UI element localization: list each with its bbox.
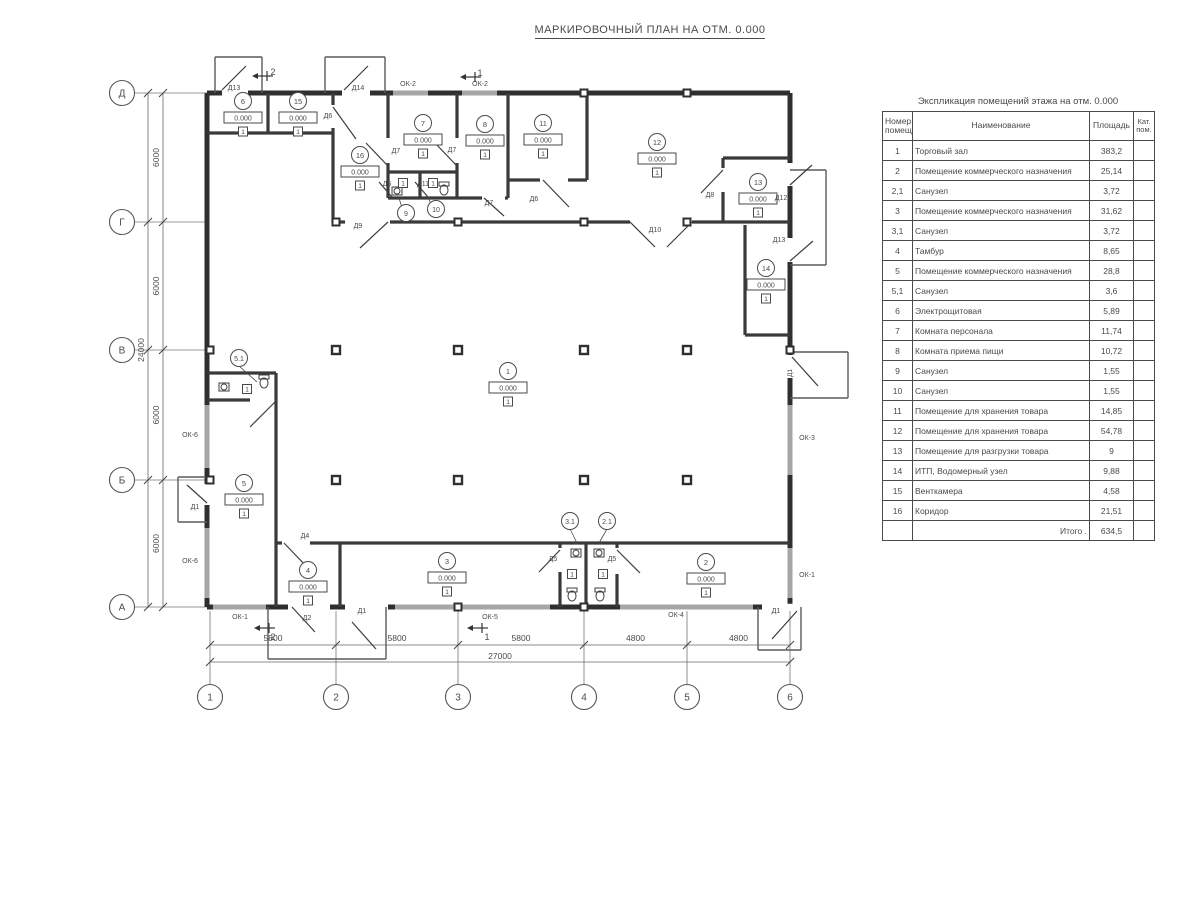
room-number-cell: 14 [883,461,913,481]
room-area-cell: 25,14 [1090,161,1134,181]
grid-col-label: 3 [455,693,461,704]
sink-icon [596,550,602,556]
room-cat-cell [1134,181,1155,201]
door-leaf [360,222,388,248]
floor-type: 1 [506,399,510,406]
floor-type: 1 [296,129,300,136]
room-name-cell: Санузел [913,381,1090,401]
room-name-cell: Санузел [913,361,1090,381]
door-leaf [790,165,812,185]
door-label: Д10 [649,227,662,234]
table-row: 7Комната персонала11,74 [883,321,1155,341]
column [454,476,462,484]
door-label: Д11 [417,181,429,188]
table-row: 12Помещение для хранения товара54,78 [883,421,1155,441]
elevation-value: 0.000 [289,116,307,123]
room-number-cell: 7 [883,321,913,341]
room-cat-cell [1134,461,1155,481]
room-name-cell: Торговый зал [913,141,1090,161]
room-name-cell: Венткамера [913,481,1090,501]
floor-type: 1 [431,181,435,188]
room-cat-cell [1134,141,1155,161]
room-cat-cell [1134,361,1155,381]
column [454,346,462,354]
room-number-cell: 10 [883,381,913,401]
table-row: 9Санузел1,55 [883,361,1155,381]
dim-value-left: 6000 [151,148,161,167]
door-leaf [543,180,569,207]
room-schedule: Экспликация помещений этажа на отм. 0.00… [882,96,1154,541]
floor-type: 1 [570,572,574,579]
room-number: 1 [506,367,510,376]
grid-row-label: А [119,603,126,614]
door-label: Д7 [448,147,457,154]
room-number: 9 [404,211,408,218]
door-label: Д7 [392,148,401,155]
sink-icon [573,550,579,556]
room-number: 10 [432,207,440,214]
total-cat-cell [1134,521,1155,541]
wall-column [684,90,691,97]
room-number: 12 [653,138,661,147]
door-leaf [772,611,797,639]
elevation-value: 0.000 [648,157,666,164]
window-label: ОК-6 [182,558,198,565]
door-label: Д1 [358,608,367,615]
section-number: 2 [270,632,275,642]
wall-column [581,219,588,226]
door-leaf [333,107,356,139]
room-cat-cell [1134,501,1155,521]
room-number: 7 [421,119,425,128]
room-cat-cell [1134,281,1155,301]
room-area-cell: 11,74 [1090,321,1134,341]
wall-column [455,604,462,611]
door-label: Д12 [775,195,788,202]
section-arrow [252,73,258,79]
window-label: ОК-1 [232,614,248,621]
table-row: 4Тамбур8,65 [883,241,1155,261]
grid-col-label: 5 [684,693,690,704]
door-label: Д5 [383,181,392,188]
dim-value-bottom: 5800 [512,633,531,643]
grid-col-label: 4 [581,693,587,704]
room-markers: 10.000120.000130.000140.000150.000160.00… [224,93,785,606]
room-area-cell: 1,55 [1090,361,1134,381]
room-cat-cell [1134,241,1155,261]
table-row: 5Помещение коммерческого назначения28,8 [883,261,1155,281]
total-row: Итого .634,5 [883,521,1155,541]
table-row: 6Электрощитовая5,89 [883,301,1155,321]
total-empty-cell [883,521,913,541]
table-row: 15Венткамера4,58 [883,481,1155,501]
grid-row-label: Г [119,218,125,229]
room-name-cell: Помещение коммерческого назначения [913,201,1090,221]
walls [178,57,848,659]
wall-column [455,219,462,226]
leader-line [599,529,607,543]
elevation-value: 0.000 [234,116,252,123]
room-area-cell: 5,89 [1090,301,1134,321]
dim-value-bottom: 5800 [388,633,407,643]
schedule-table: Номер помещ.НаименованиеПлощадьКат. пом.… [882,111,1155,541]
room-number-cell: 5,1 [883,281,913,301]
column [683,346,691,354]
room-area-cell: 9 [1090,441,1134,461]
room-number-cell: 5 [883,261,913,281]
table-row: 13Помещение для разгрузки товара9 [883,441,1155,461]
drawing-sheet: МАРКИРОВОЧНЫЙ ПЛАН НА ОТМ. 0.000 ДГВБА12… [0,0,1200,900]
dim-value-bottom-total: 27000 [488,651,512,661]
schedule-header: Наименование [913,112,1090,141]
room-name-cell: Помещение для разгрузки товара [913,441,1090,461]
window-label: ОК-4 [668,612,684,619]
table-row: 1Торговый зал383,2 [883,141,1155,161]
sink-icon [221,384,227,390]
total-label-cell: Итого . [913,521,1090,541]
column [332,346,340,354]
elevation-value: 0.000 [757,283,775,290]
room-name-cell: Помещение для хранения товара [913,401,1090,421]
elevation-value: 0.000 [534,138,552,145]
door-label: Д6 [324,113,333,120]
floor-type: 1 [445,589,449,596]
room-number-cell: 3 [883,201,913,221]
wall-column [581,604,588,611]
dim-value-left: 6000 [151,276,161,295]
table-row: 14ИТП, Водомерный узел9,88 [883,461,1155,481]
room-name-cell: Тамбур [913,241,1090,261]
columns [207,90,794,611]
wall-column [207,477,214,484]
dim-value-bottom: 4800 [729,633,748,643]
column [580,476,588,484]
room-cat-cell [1134,321,1155,341]
floor-type: 1 [764,296,768,303]
room-name-cell: Помещение коммерческого назначения [913,161,1090,181]
wall-column [787,347,794,354]
room-name-cell: Помещение коммерческого назначения [913,261,1090,281]
door-leaf [617,550,640,573]
floor-type: 1 [401,181,405,188]
room-number: 5.1 [234,356,244,363]
room-area-cell: 54,78 [1090,421,1134,441]
elevation-value: 0.000 [749,197,767,204]
room-area-cell: 3,72 [1090,181,1134,201]
room-area-cell: 31,62 [1090,201,1134,221]
room-area-cell: 4,58 [1090,481,1134,501]
dim-value-bottom: 4800 [626,633,645,643]
grid-row-label: Д [119,89,126,100]
room-cat-cell [1134,261,1155,281]
room-area-cell: 383,2 [1090,141,1134,161]
table-row: 2Помещение коммерческого назначения25,14 [883,161,1155,181]
section-number: 2 [270,67,275,77]
schedule-header: Кат. пом. [1134,112,1155,141]
elevation-value: 0.000 [476,139,494,146]
wall-column [684,219,691,226]
room-area-cell: 3,72 [1090,221,1134,241]
door-leaf [790,241,813,261]
room-name-cell: Помещение для хранения товара [913,421,1090,441]
dim-value-left: 6000 [151,534,161,553]
room-cat-cell [1134,421,1155,441]
window-label: ОК-1 [799,572,815,579]
room-number: 15 [294,97,302,106]
schedule-header: Площадь [1090,112,1134,141]
window-label: ОК-2 [400,81,416,88]
floor-type: 1 [483,152,487,159]
room-cat-cell [1134,161,1155,181]
room-number: 2 [704,558,708,567]
table-row: 3Помещение коммерческого назначения31,62 [883,201,1155,221]
dim-value-left-total: 24000 [136,338,146,362]
elevation-value: 0.000 [697,577,715,584]
door-label: Д2 [303,615,312,622]
grid-row-label: Б [119,476,126,487]
room-name-cell: ИТП, Водомерный узел [913,461,1090,481]
room-number-cell: 6 [883,301,913,321]
room-number-cell: 11 [883,401,913,421]
door-leaf [792,357,818,386]
table-row: 3,1Санузел3,72 [883,221,1155,241]
door-leaf [250,402,275,427]
room-area-cell: 1,55 [1090,381,1134,401]
door-label: Д14 [352,85,365,92]
window-label: ОК-3 [799,435,815,442]
room-number: 11 [539,119,547,128]
door-leaf [630,222,655,247]
floor-type: 1 [306,598,310,605]
floor-type: 1 [756,210,760,217]
room-cat-cell [1134,401,1155,421]
wall-column [581,90,588,97]
door-label: Д5 [549,556,558,563]
section-arrow [254,625,260,631]
room-name-cell: Санузел [913,221,1090,241]
wall-column [333,219,340,226]
floor-type: 1 [242,511,246,518]
table-row: 2,1Санузел3,72 [883,181,1155,201]
door-label: Д8 [706,192,715,199]
room-number-cell: 4 [883,241,913,261]
grid-col-label: 2 [333,693,339,704]
door-leaf [366,143,388,166]
leader-line [570,529,577,543]
door-label: Д9 [354,223,363,230]
room-number: 13 [754,178,762,187]
room-name-cell: Коридор [913,501,1090,521]
room-number-cell: 8 [883,341,913,361]
elevation-value: 0.000 [299,585,317,592]
room-name-cell: Комната персонала [913,321,1090,341]
room-cat-cell [1134,301,1155,321]
room-cat-cell [1134,441,1155,461]
room-area-cell: 21,51 [1090,501,1134,521]
room-number-cell: 15 [883,481,913,501]
window-label: ОК-2 [472,81,488,88]
section-number: 1 [484,632,489,642]
room-area-cell: 8,65 [1090,241,1134,261]
room-number-cell: 12 [883,421,913,441]
room-cat-cell [1134,381,1155,401]
elevation-value: 0.000 [499,386,517,393]
room-number: 6 [241,97,245,106]
column [580,346,588,354]
room-area-cell: 14,85 [1090,401,1134,421]
room-area-cell: 28,8 [1090,261,1134,281]
door-label: Д7 [485,200,494,207]
floor-type: 1 [241,129,245,136]
grid-col-label: 1 [207,693,213,704]
room-cat-cell [1134,221,1155,241]
table-row: 10Санузел1,55 [883,381,1155,401]
door-leaf [701,170,723,193]
table-row: 5,1Санузел3,6 [883,281,1155,301]
door-label: Д1 [191,504,200,511]
section-arrow [460,74,466,80]
room-area-cell: 9,88 [1090,461,1134,481]
room-name-cell: Санузел [913,181,1090,201]
room-number-cell: 1 [883,141,913,161]
section-number: 1 [477,68,482,78]
window-label: ОК-6 [182,432,198,439]
window-label: ОК-5 [482,614,498,621]
door-label-rotated: Д1 [787,369,794,377]
room-number: 14 [762,264,770,273]
floor-type: 1 [704,590,708,597]
total-value-cell: 634,5 [1090,521,1134,541]
floor-type: 1 [541,151,545,158]
section-arrow [467,625,473,631]
column [683,476,691,484]
table-row: 11Помещение для хранения товара14,85 [883,401,1155,421]
dim-value-left: 6000 [151,405,161,424]
room-name-cell: Электрощитовая [913,301,1090,321]
room-cat-cell [1134,481,1155,501]
wall-column [207,347,214,354]
schedule-header: Номер помещ. [883,112,913,141]
floor-type: 1 [601,572,605,579]
room-number-cell: 9 [883,361,913,381]
floor-type: 1 [421,151,425,158]
table-row: 8Комната приема пищи10,72 [883,341,1155,361]
room-cat-cell [1134,201,1155,221]
room-number-cell: 3,1 [883,221,913,241]
room-area-cell: 3,6 [1090,281,1134,301]
elevation-value: 0.000 [351,170,369,177]
room-number: 3.1 [565,519,575,526]
floor-type: 1 [655,170,659,177]
door-label: Д1 [772,608,781,615]
elevation-value: 0.000 [438,576,456,583]
door-label: Д5 [608,556,617,563]
column [332,476,340,484]
room-name-cell: Комната приема пищи [913,341,1090,361]
door-label: Д13 [228,85,241,92]
room-number: 4 [306,566,310,575]
room-number: 16 [356,151,364,160]
room-name-cell: Санузел [913,281,1090,301]
room-number: 3 [445,557,449,566]
grid-col-label: 6 [787,693,793,704]
room-area-cell: 10,72 [1090,341,1134,361]
elevation-value: 0.000 [414,138,432,145]
door-label: Д4 [301,533,310,540]
floor-type: 1 [245,387,249,394]
door-label: Д13 [773,237,786,244]
elevation-value: 0.000 [235,498,253,505]
room-number: 8 [483,120,487,129]
room-cat-cell [1134,341,1155,361]
grid-row-label: В [119,346,126,357]
sink-icon [394,188,400,194]
floor-type: 1 [358,183,362,190]
room-number: 5 [242,479,246,488]
schedule-title: Экспликация помещений этажа на отм. 0.00… [882,96,1154,107]
room-number-cell: 13 [883,441,913,461]
table-row: 16Коридор21,51 [883,501,1155,521]
room-number-cell: 2 [883,161,913,181]
room-number-cell: 16 [883,501,913,521]
room-number: 2.1 [602,519,612,526]
room-number-cell: 2,1 [883,181,913,201]
door-label: Д6 [530,196,539,203]
